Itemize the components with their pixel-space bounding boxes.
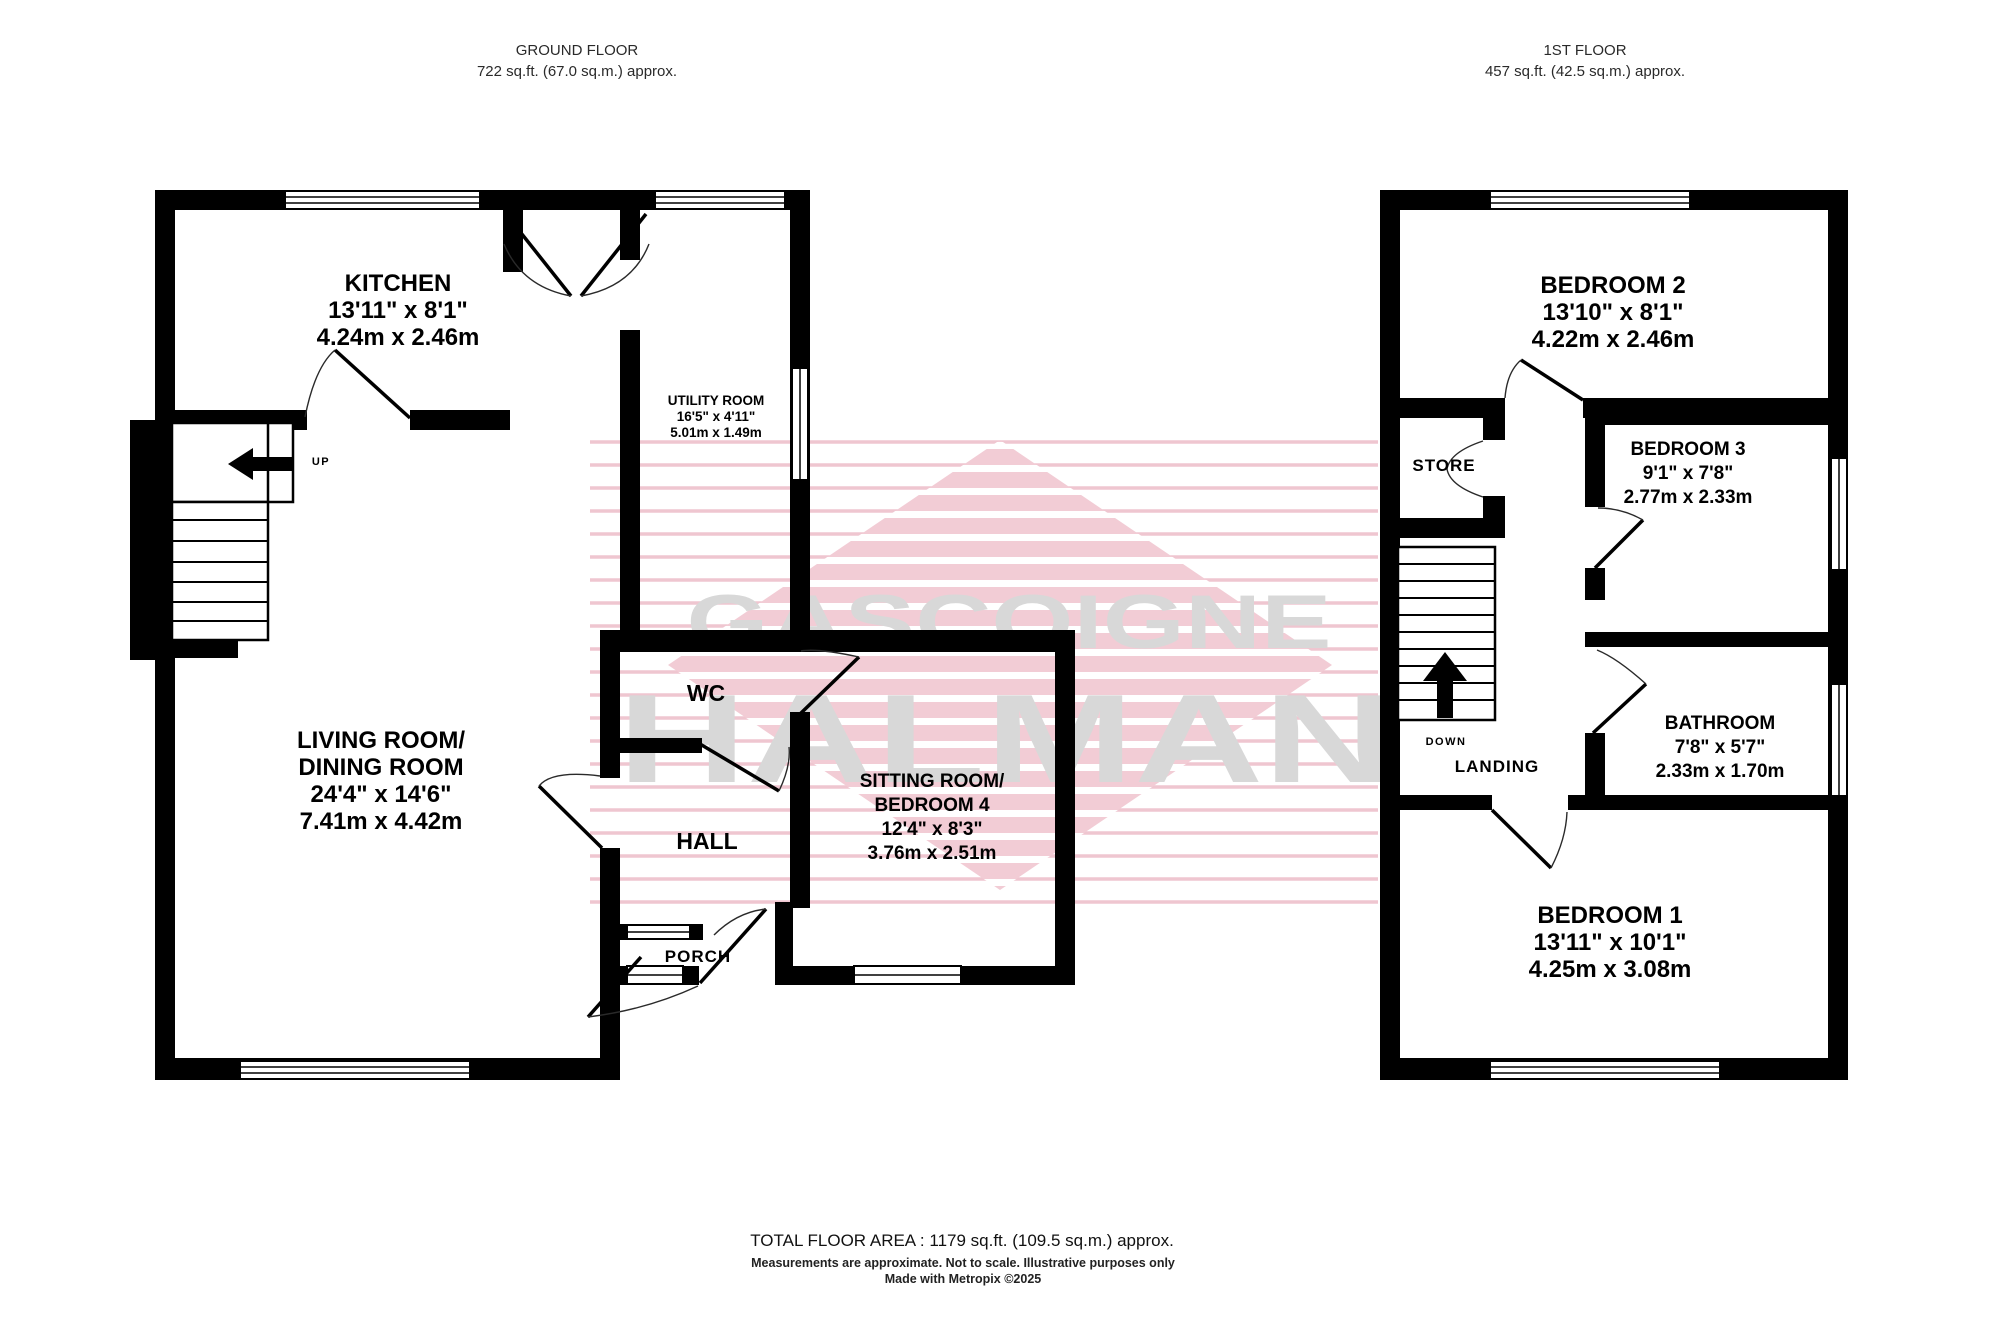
ground-floor-area: 722 sq.ft. (67.0 sq.m.) approx. <box>477 61 677 82</box>
first-floor-title: 1ST FLOOR <box>1485 40 1685 61</box>
stairs-ground <box>172 423 293 640</box>
total-floor-area: TOTAL FLOOR AREA : 1179 sq.ft. (109.5 sq… <box>750 1231 1174 1251</box>
room-label-bedroom2: BEDROOM 2 13'10" x 8'1" 4.22m x 2.46m <box>1532 272 1695 353</box>
first-floor-header: 1ST FLOOR 457 sq.ft. (42.5 sq.m.) approx… <box>1485 40 1685 82</box>
kitchen-metric: 4.24m x 2.46m <box>317 324 480 351</box>
first-floor-area: 457 sq.ft. (42.5 sq.m.) approx. <box>1485 61 1685 82</box>
watermark-text-gascoigne: GASCOIGNE <box>687 580 1332 665</box>
ground-floor-title: GROUND FLOOR <box>477 40 677 61</box>
bathroom-metric: 2.33m x 1.70m <box>1656 760 1785 784</box>
bathroom-name: BATHROOM <box>1656 712 1785 736</box>
living-name1: LIVING ROOM/ <box>297 727 465 754</box>
sitting-name2: BEDROOM 4 <box>860 794 1005 818</box>
utility-imperial: 16'5" x 4'11" <box>668 409 765 425</box>
first-floor-doors <box>1492 360 1646 868</box>
room-label-kitchen: KITCHEN 13'11" x 8'1" 4.24m x 2.46m <box>317 270 480 351</box>
kitchen-imperial: 13'11" x 8'1" <box>317 297 480 324</box>
ground-floor-plan <box>130 190 1075 1080</box>
living-imperial: 24'4" x 14'6" <box>297 781 465 808</box>
room-label-wc: WC <box>687 680 725 707</box>
floorplan-drawing: GASCOIGNE HALMAN <box>0 0 2000 1333</box>
bedroom1-imperial: 13'11" x 10'1" <box>1529 929 1692 956</box>
room-label-bedroom1: BEDROOM 1 13'11" x 10'1" 4.25m x 3.08m <box>1529 902 1692 983</box>
watermark-text-halman: HALMAN <box>618 668 1393 809</box>
room-label-landing: LANDING <box>1455 757 1539 777</box>
bedroom2-imperial: 13'10" x 8'1" <box>1532 299 1695 326</box>
sitting-metric: 3.76m x 2.51m <box>860 842 1005 866</box>
footer-credit: Made with Metropix ©2025 <box>885 1272 1041 1286</box>
room-label-porch: PORCH <box>665 947 731 967</box>
footer-disclaimer: Measurements are approximate. Not to sca… <box>751 1256 1175 1270</box>
room-label-hall: HALL <box>676 828 737 855</box>
room-label-bathroom: BATHROOM 7'8" x 5'7" 2.33m x 1.70m <box>1656 712 1785 784</box>
bedroom3-imperial: 9'1" x 7'8" <box>1624 462 1753 486</box>
stairs-up-label: UP <box>312 456 330 469</box>
room-label-living: LIVING ROOM/ DINING ROOM 24'4" x 14'6" 7… <box>297 727 465 835</box>
bathroom-imperial: 7'8" x 5'7" <box>1656 736 1785 760</box>
bedroom3-metric: 2.77m x 2.33m <box>1624 486 1753 510</box>
room-label-store: STORE <box>1412 456 1475 476</box>
bedroom1-metric: 4.25m x 3.08m <box>1529 956 1692 983</box>
kitchen-name: KITCHEN <box>317 270 480 297</box>
living-metric: 7.41m x 4.42m <box>297 808 465 835</box>
bedroom2-metric: 4.22m x 2.46m <box>1532 326 1695 353</box>
bedroom1-name: BEDROOM 1 <box>1529 902 1692 929</box>
utility-name: UTILITY ROOM <box>668 393 765 409</box>
ground-floor-walls <box>130 190 1075 1080</box>
room-label-bedroom3: BEDROOM 3 9'1" x 7'8" 2.77m x 2.33m <box>1624 438 1753 510</box>
stairs-first <box>1398 547 1495 720</box>
bedroom2-name: BEDROOM 2 <box>1532 272 1695 299</box>
utility-metric: 5.01m x 1.49m <box>668 425 765 441</box>
stairs-down-label: DOWN <box>1426 736 1467 749</box>
floorplan-page: GASCOIGNE HALMAN <box>0 0 2000 1333</box>
room-label-sitting: SITTING ROOM/ BEDROOM 4 12'4" x 8'3" 3.7… <box>860 770 1005 866</box>
sitting-name1: SITTING ROOM/ <box>860 770 1005 794</box>
living-name2: DINING ROOM <box>297 754 465 781</box>
ground-floor-header: GROUND FLOOR 722 sq.ft. (67.0 sq.m.) app… <box>477 40 677 82</box>
bedroom3-name: BEDROOM 3 <box>1624 438 1753 462</box>
room-label-utility: UTILITY ROOM 16'5" x 4'11" 5.01m x 1.49m <box>668 393 765 441</box>
sitting-imperial: 12'4" x 8'3" <box>860 818 1005 842</box>
